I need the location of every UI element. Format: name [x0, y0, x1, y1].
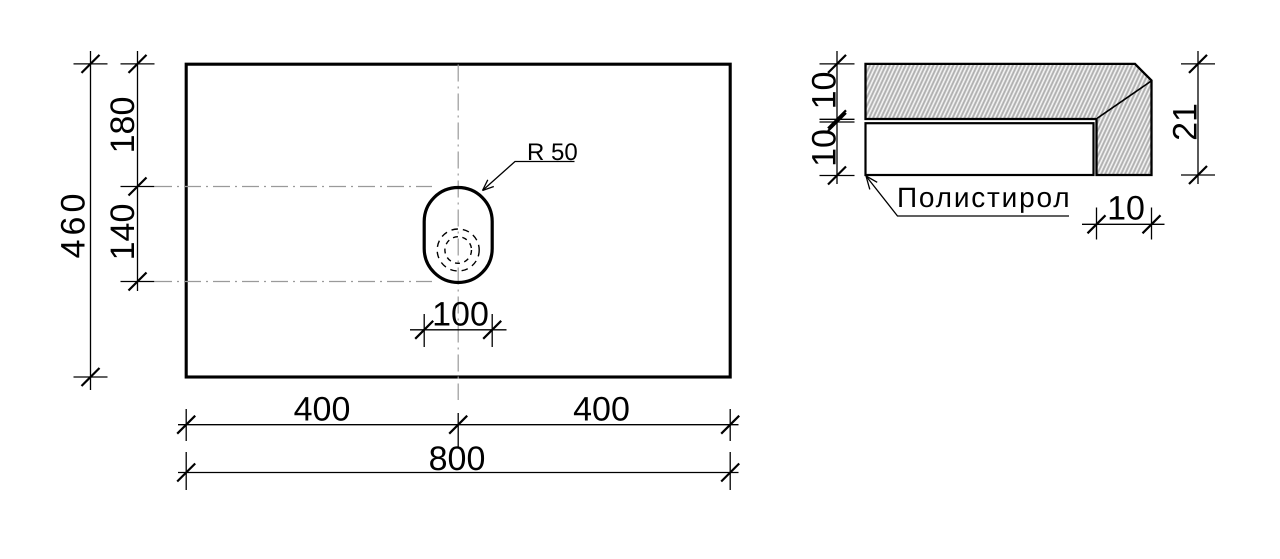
svg-text:460: 460 [55, 190, 93, 259]
svg-text:Полистирол: Полистирол [897, 182, 1071, 213]
svg-text:10: 10 [1107, 190, 1145, 228]
svg-text:180: 180 [104, 97, 142, 154]
svg-text:10: 10 [806, 129, 844, 167]
svg-text:100: 100 [432, 296, 489, 334]
svg-text:21: 21 [1167, 103, 1205, 141]
svg-text:400: 400 [573, 391, 630, 429]
svg-text:R 50: R 50 [527, 139, 578, 166]
svg-text:800: 800 [429, 440, 486, 478]
svg-text:400: 400 [294, 391, 351, 429]
svg-text:10: 10 [806, 72, 844, 110]
svg-text:140: 140 [104, 204, 142, 261]
